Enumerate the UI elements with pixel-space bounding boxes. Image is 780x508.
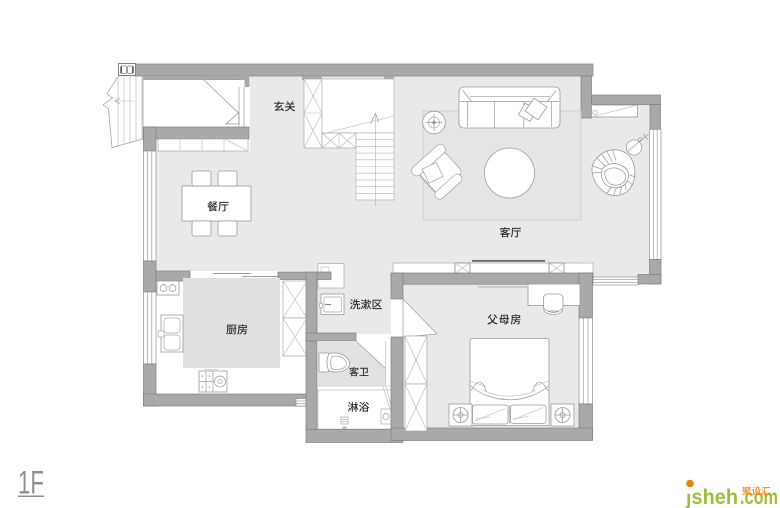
svg-text:1F: 1F <box>18 465 44 501</box>
